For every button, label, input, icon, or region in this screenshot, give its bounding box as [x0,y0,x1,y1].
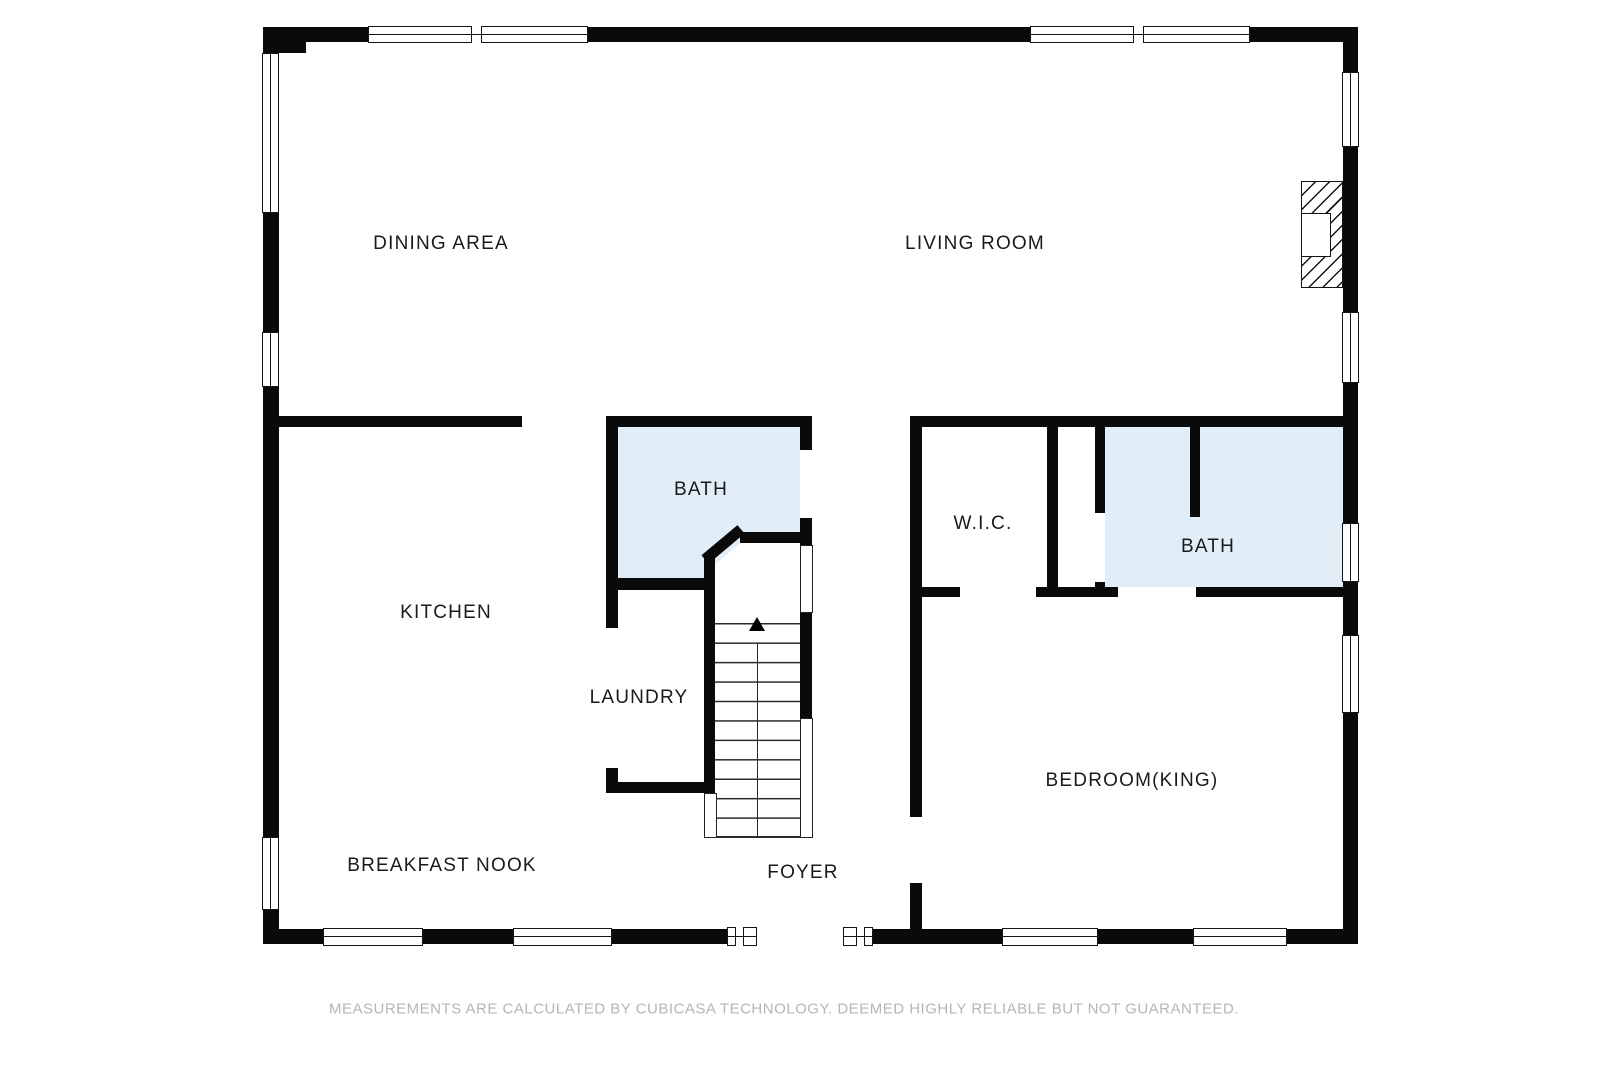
stair-railing [800,545,813,613]
disclaimer-text: MEASUREMENTS ARE CALCULATED BY CUBICASA … [329,1001,1239,1018]
window [513,928,612,946]
wall-segment [263,213,279,332]
entry-sidelight [727,927,757,946]
window-mullion [735,927,744,947]
window [323,928,423,946]
window [1342,72,1359,147]
stair-center-line [757,643,759,838]
wall-segment [1287,929,1358,944]
wall-segment [1343,147,1358,312]
wall-segment [800,416,812,450]
window [262,332,279,387]
stair-railing [800,718,813,838]
wall-segment [704,557,715,793]
room-label-kitchen: KITCHEN [400,602,492,624]
window-mullion [1133,26,1144,44]
wall-segment [910,883,922,944]
entry-sidelight [843,927,873,946]
window [368,26,588,43]
wall-segment [873,929,1002,944]
wall-segment [1343,27,1358,72]
wall-segment [1343,713,1358,944]
wall-segment [1047,425,1058,597]
room-label-dining-area: DINING AREA [373,233,509,255]
wall-segment [1196,587,1343,597]
wall-segment [423,929,513,944]
room-label-foyer: FOYER [767,862,838,884]
fireplace-notch [1301,213,1331,257]
stairs-up-arrow-icon [749,617,765,631]
window-mullion [471,26,482,44]
wall-segment [910,416,1343,427]
wall-segment [606,782,714,793]
room-label-bath-center: BATH [674,479,728,501]
stair-railing [704,793,717,838]
window [262,53,279,213]
wall-segment [606,416,618,590]
window-mullion [856,927,865,947]
bath-right-floor [1105,425,1343,587]
wall-segment [1190,425,1200,517]
wall-segment [910,587,960,597]
wall-segment [910,416,922,817]
fireplace [1301,181,1343,288]
wall-segment [606,590,618,628]
wall-segment [800,612,812,718]
wall-segment [1095,425,1105,513]
window [1342,523,1359,582]
wall-segment [607,416,812,427]
wall-segment [740,532,812,543]
wall-segment [606,578,715,590]
wall-segment [263,929,323,944]
window [1342,312,1359,383]
room-label-bath-right: BATH [1181,536,1235,558]
window [1342,635,1359,713]
staircase [715,612,800,838]
window [262,837,279,910]
room-label-laundry: LAUNDRY [590,687,689,709]
wall-segment [612,929,727,944]
wall-segment [277,416,522,427]
wall-segment [1036,587,1118,597]
floor-plan: DINING AREA LIVING ROOM KITCHEN BATH W.I… [0,0,1621,1080]
wall-segment [263,387,279,837]
stair-bottom-edge [704,836,813,838]
wall-segment [1343,582,1358,635]
window [1002,928,1098,946]
room-label-living-room: LIVING ROOM [905,233,1045,255]
room-label-breakfast-nook: BREAKFAST NOOK [347,855,537,877]
wall-segment [1343,383,1358,523]
room-label-wic: W.I.C. [954,513,1013,535]
room-label-bedroom: BEDROOM(KING) [1046,770,1219,792]
wall-segment [263,42,306,53]
window [1193,928,1287,946]
window [1030,26,1250,43]
wall-segment [1098,929,1193,944]
